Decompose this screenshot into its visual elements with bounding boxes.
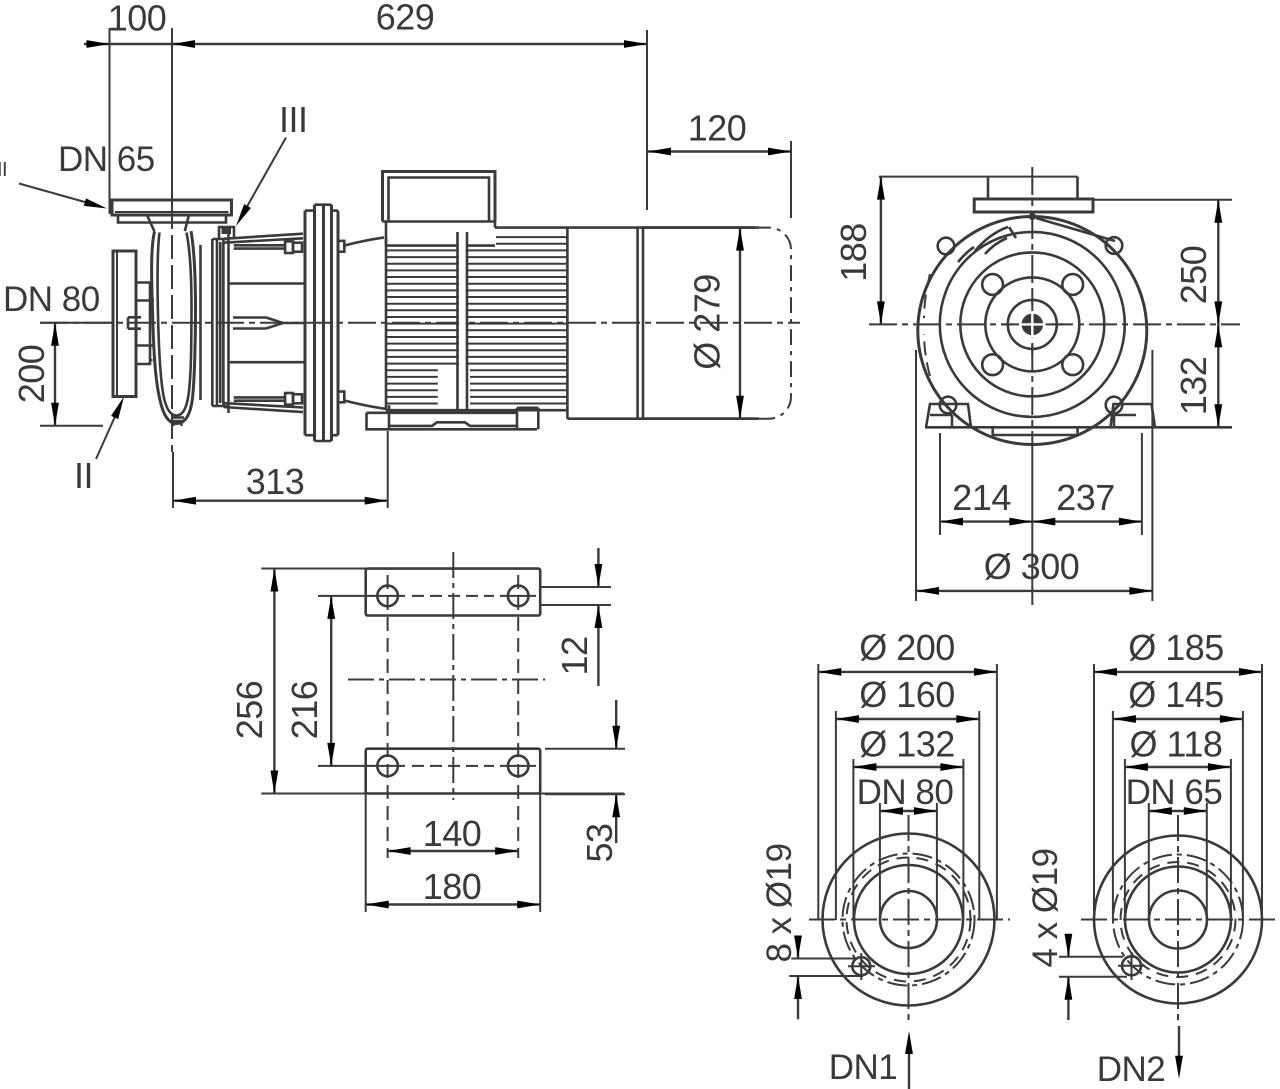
- svg-text:53: 53: [579, 823, 620, 862]
- svg-text:DN 80: DN 80: [857, 773, 954, 812]
- svg-text:DN 65: DN 65: [1126, 773, 1223, 812]
- svg-text:250: 250: [1173, 246, 1214, 305]
- svg-text:II: II: [74, 455, 93, 496]
- svg-text:4 x Ø19: 4 x Ø19: [1026, 848, 1065, 967]
- svg-text:188: 188: [833, 223, 874, 282]
- svg-text:132: 132: [1173, 357, 1214, 416]
- svg-text:Ø 200: Ø 200: [859, 627, 955, 668]
- svg-text:Ø 145: Ø 145: [1128, 674, 1224, 715]
- svg-text:Ø 279: Ø 279: [687, 274, 728, 370]
- svg-text:12: 12: [554, 636, 595, 675]
- svg-text:DN1: DN1: [829, 1048, 898, 1087]
- svg-text:DN2: DN2: [1097, 1050, 1166, 1089]
- svg-text:Ø 160: Ø 160: [859, 674, 955, 715]
- svg-text:214: 214: [952, 477, 1011, 518]
- svg-text:Ø 118: Ø 118: [1130, 724, 1223, 765]
- svg-text:200: 200: [11, 345, 52, 404]
- svg-text:8 x Ø19: 8 x Ø19: [760, 843, 799, 962]
- svg-text:Ø 300: Ø 300: [984, 546, 1080, 587]
- svg-text:120: 120: [688, 108, 747, 149]
- svg-text:II: II: [0, 159, 7, 181]
- svg-text:256: 256: [229, 681, 270, 740]
- svg-text:140: 140: [423, 813, 482, 854]
- svg-text:DN 80: DN 80: [3, 280, 100, 319]
- svg-text:180: 180: [423, 866, 482, 907]
- svg-text:629: 629: [376, 0, 435, 38]
- svg-text:216: 216: [284, 681, 325, 740]
- svg-text:313: 313: [246, 461, 305, 502]
- svg-text:Ø 185: Ø 185: [1128, 627, 1224, 668]
- svg-text:III: III: [279, 99, 308, 140]
- svg-text:Ø 132: Ø 132: [859, 724, 955, 765]
- svg-text:100: 100: [108, 0, 167, 39]
- svg-text:DN 65: DN 65: [58, 140, 155, 179]
- svg-text:237: 237: [1056, 477, 1115, 518]
